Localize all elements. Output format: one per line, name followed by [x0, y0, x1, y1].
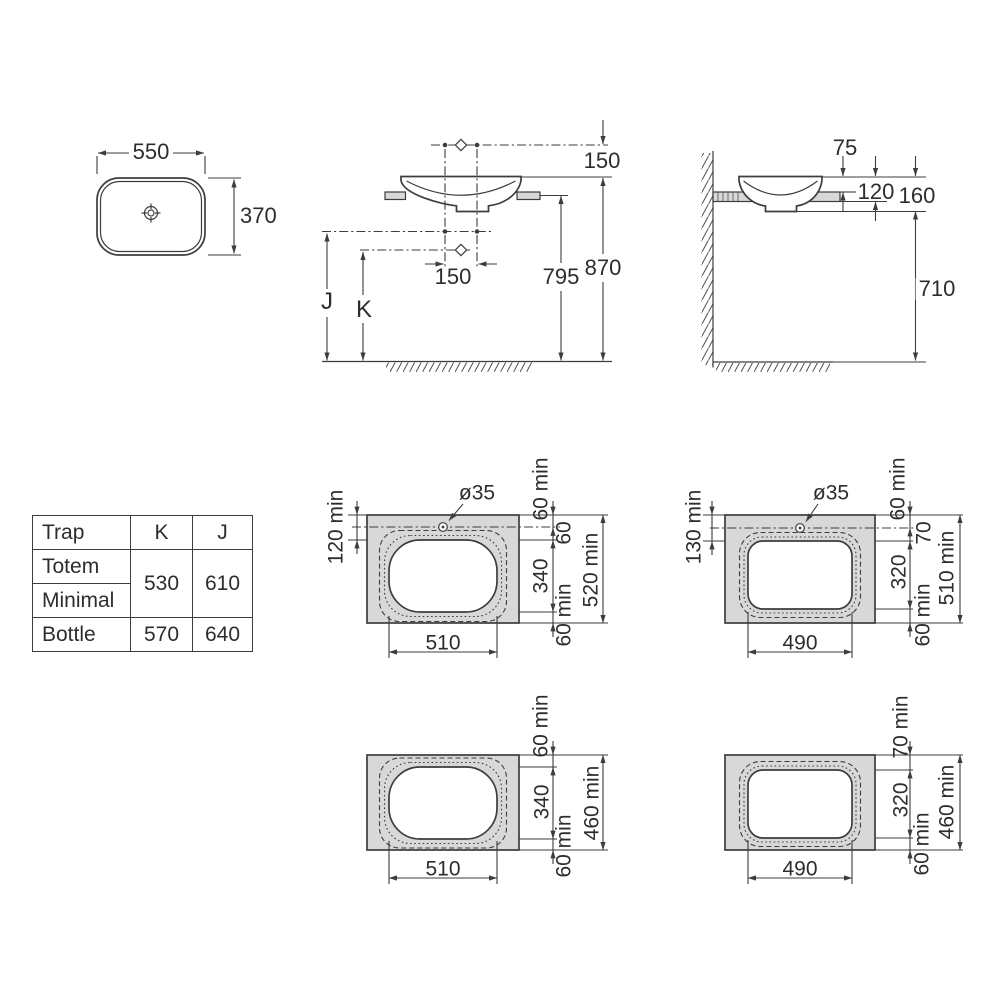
dim-faucet-above-rim: 150 [584, 150, 621, 172]
dim-tap-to-cutout: 60 [554, 521, 575, 544]
dim-cutout-depth: 340 [531, 558, 552, 593]
trap-dimensions-table: Trap K J Totem 530 610 Minimal Bottle 57… [32, 515, 253, 652]
dim-cutout-width: 490 [782, 633, 817, 654]
dim-cutout-width: 510 [425, 859, 460, 880]
dim-back-margin: 60 min [554, 583, 575, 646]
cell-bottle-j: 640 [193, 618, 253, 652]
dim-back-margin: 60 min [554, 814, 575, 877]
basin-top-view [97, 178, 205, 255]
dim-cutout-depth: 320 [889, 554, 910, 589]
dim-top-width: 550 [133, 141, 170, 163]
installation-drawing-sheet: 550 370 150 795 870 150 J K 75 120 160 7… [0, 0, 1000, 1000]
dim-cutout-depth: 340 [532, 784, 553, 819]
label-hole-diameter: ø35 [813, 483, 849, 504]
dim-floor-to-rim: 870 [582, 257, 625, 279]
cell-bottle-k: 570 [131, 618, 193, 652]
col-header-trap: Trap [33, 516, 131, 550]
dim-rim-above-counter: 75 [833, 137, 857, 159]
dim-cutout-width: 490 [782, 859, 817, 880]
cell-totem-minimal-j: 610 [193, 550, 253, 618]
dim-trap-j: J [321, 290, 333, 314]
dim-edge-margin: 60 min [531, 694, 552, 757]
dim-top-depth: 370 [240, 205, 277, 227]
dim-min-total-depth: 460 min [582, 766, 603, 841]
dim-faucet-spacing: 150 [435, 266, 472, 288]
dim-trap-k: K [356, 298, 372, 322]
col-header-k: K [131, 516, 193, 550]
dim-floor-to-counter: 795 [540, 266, 583, 288]
dim-edge-to-tap: 60 min [531, 457, 552, 520]
dim-tap-to-cutout: 70 [914, 521, 935, 544]
dim-rim-to-counter-underside: 120 [858, 181, 895, 203]
dim-front-margin: 120 min [326, 490, 347, 565]
cell-trap-bottle: Bottle [33, 618, 131, 652]
dim-min-total-depth: 510 min [937, 531, 958, 606]
dim-cutout-depth: 320 [891, 782, 912, 817]
dim-min-total-depth: 460 min [937, 765, 958, 840]
dim-min-total-depth: 520 min [581, 533, 602, 608]
dim-rim-to-basin-bottom: 160 [899, 185, 936, 207]
front-view-dimensions [327, 120, 612, 361]
dim-front-margin: 130 min [684, 490, 705, 565]
dim-edge-margin: 70 min [891, 695, 912, 758]
label-hole-diameter: ø35 [459, 483, 495, 504]
dim-edge-to-tap: 60 min [888, 457, 909, 520]
table-row: Bottle 570 640 [33, 618, 253, 652]
table-header-row: Trap K J [33, 516, 253, 550]
dim-basin-bottom-to-floor: 710 [916, 278, 959, 300]
col-header-j: J [193, 516, 253, 550]
dim-cutout-width: 510 [425, 633, 460, 654]
dim-back-margin: 60 min [913, 583, 934, 646]
dim-back-margin: 60 min [912, 812, 933, 875]
cell-trap-totem: Totem [33, 550, 131, 584]
table-row: Totem 530 610 [33, 550, 253, 584]
cell-trap-minimal: Minimal [33, 584, 131, 618]
cell-totem-minimal-k: 530 [131, 550, 193, 618]
